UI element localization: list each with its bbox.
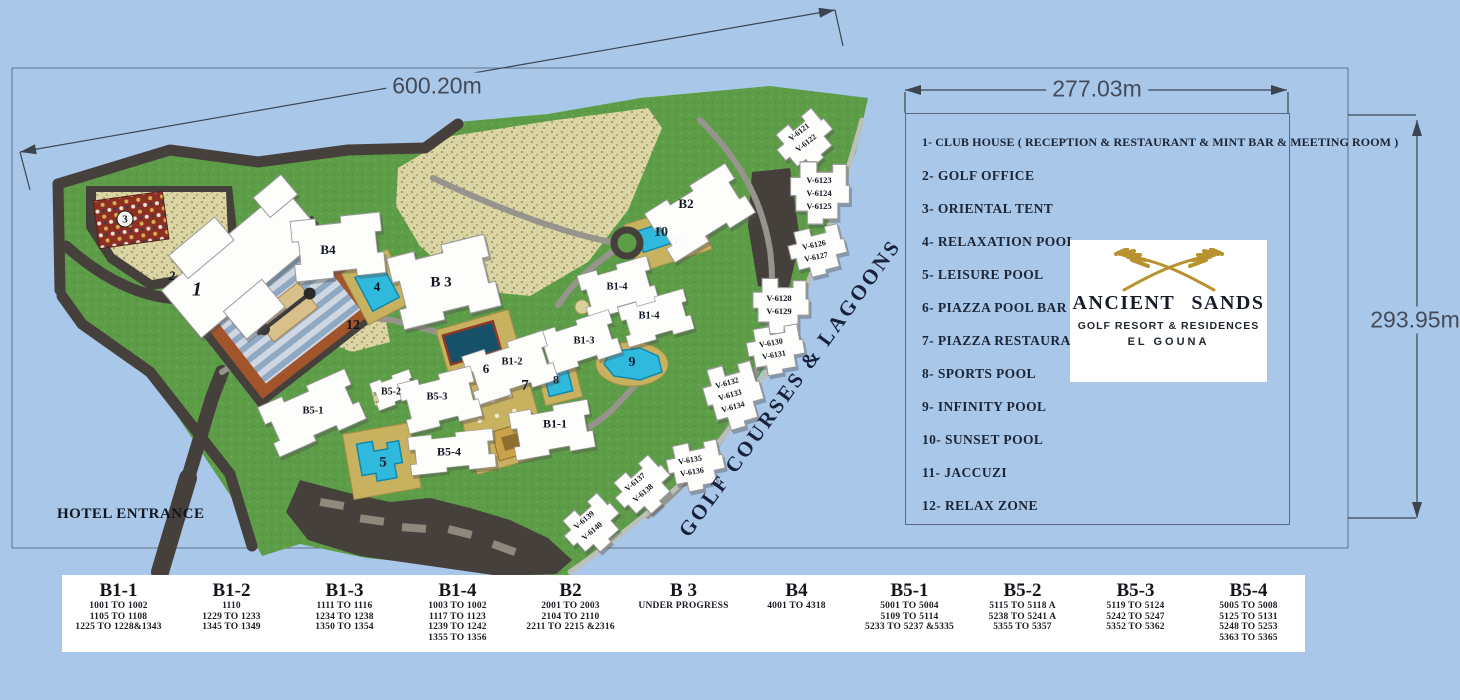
map-label: 1 xyxy=(192,279,202,302)
table-column: B22001 TO 20032104 TO 21102211 TO 2215 &… xyxy=(514,575,627,652)
unit-range: 2104 TO 2110 xyxy=(514,612,627,623)
units-table: B1-11001 TO 10021105 TO 11081225 TO 1228… xyxy=(62,575,1305,652)
unit-range: 5005 TO 5008 xyxy=(1192,601,1305,612)
map-label: 6 xyxy=(483,361,490,377)
map-label: 7 xyxy=(521,378,529,395)
table-column-header: B5-1 xyxy=(853,580,966,601)
logo-card: ANCIENT SANDS GOLF RESORT & RESIDENCES E… xyxy=(1070,240,1267,382)
map-label: 5 xyxy=(379,455,387,472)
map-label: 2 xyxy=(169,268,176,284)
legend-item: 12- RELAX ZONE xyxy=(906,489,1289,522)
table-column-header: B5-4 xyxy=(1192,580,1305,601)
map-label: V-6123 xyxy=(806,175,831,185)
map-label: V-6134 xyxy=(720,399,745,414)
map-label: B4 xyxy=(320,242,335,258)
unit-range: 4001 TO 4318 xyxy=(740,601,853,612)
unit-range: 5248 TO 5253 xyxy=(1192,622,1305,633)
unit-range: 1111 TO 1116 xyxy=(288,601,401,612)
unit-range: 5352 TO 5362 xyxy=(1079,622,1192,633)
table-column: B5-25115 TO 5118 A5238 TO 5241 A5355 TO … xyxy=(966,575,1079,652)
map-label: V-6128 xyxy=(766,293,791,303)
map-label: 12 xyxy=(346,318,360,334)
unit-range: 1117 TO 1123 xyxy=(401,612,514,623)
unit-range: 5109 TO 5114 xyxy=(853,612,966,623)
table-column: B1-211101229 TO 12331345 TO 1349 xyxy=(175,575,288,652)
map-label: B5-3 xyxy=(427,392,448,403)
map-label: B 3 xyxy=(430,275,451,292)
map-label: B5-1 xyxy=(303,406,324,417)
map-label: V-6135 xyxy=(677,453,702,466)
map-label: 10 xyxy=(654,225,668,241)
dimension-top: 600.20m xyxy=(386,73,488,100)
table-column: B5-15001 TO 50045109 TO 51145233 TO 5237… xyxy=(853,575,966,652)
table-column-header: B2 xyxy=(514,580,627,601)
unit-range: 5233 TO 5237 &5335 xyxy=(853,622,966,633)
table-column: B1-31111 TO 11161234 TO 12381350 TO 1354 xyxy=(288,575,401,652)
table-column: B5-35119 TO 51245242 TO 52475352 TO 5362 xyxy=(1079,575,1192,652)
map-label: B1-1 xyxy=(543,417,567,432)
map-label: 3 xyxy=(117,211,134,228)
table-column-header: B5-2 xyxy=(966,580,1079,601)
map-label: V-6136 xyxy=(679,465,704,478)
logo-title: ANCIENT SANDS xyxy=(1073,292,1265,315)
unit-range: 5242 TO 5247 xyxy=(1079,612,1192,623)
legend-item: 2- GOLF OFFICE xyxy=(906,159,1289,192)
map-label: B5-2 xyxy=(381,387,401,398)
map-label: B1-4 xyxy=(607,282,628,293)
unit-range: 1105 TO 1108 xyxy=(62,612,175,623)
unit-range: 1225 TO 1228&1343 xyxy=(62,622,175,633)
logo-city: EL GOUNA xyxy=(1128,336,1210,348)
table-column: B5-45005 TO 50085125 TO 51315248 TO 5253… xyxy=(1192,575,1305,652)
unit-range: 5001 TO 5004 xyxy=(853,601,966,612)
map-label: V-6130 xyxy=(758,336,783,349)
table-column: B 3UNDER PROGRESS xyxy=(627,575,740,652)
unit-range: 1229 TO 1233 xyxy=(175,612,288,623)
map-label: B1-2 xyxy=(502,357,523,368)
legend-item: 9- INFINITY POOL xyxy=(906,390,1289,423)
table-column-header: B1-3 xyxy=(288,580,401,601)
unit-range: 1350 TO 1354 xyxy=(288,622,401,633)
crossed-fronds-icon xyxy=(1094,248,1244,292)
table-column: B1-11001 TO 10021105 TO 11081225 TO 1228… xyxy=(62,575,175,652)
legend-item: 1- CLUB HOUSE ( RECEPTION & RESTAURANT &… xyxy=(906,126,1289,159)
unit-range: UNDER PROGRESS xyxy=(627,601,740,612)
hotel-entrance-label: HOTEL ENTRANCE xyxy=(57,506,204,523)
logo-subtitle: GOLF RESORT & RESIDENCES xyxy=(1078,320,1260,332)
unit-range: 5115 TO 5118 A xyxy=(966,601,1079,612)
table-column-header: B4 xyxy=(740,580,853,601)
unit-range: 1355 TO 1356 xyxy=(401,633,514,644)
table-column-header: B1-2 xyxy=(175,580,288,601)
map-label: B5-4 xyxy=(437,445,461,460)
legend-item: 3- ORIENTAL TENT xyxy=(906,192,1289,225)
map-label: 11 xyxy=(674,235,683,245)
unit-range: 2211 TO 2215 &2316 xyxy=(514,622,627,633)
map-label: V-6127 xyxy=(803,250,828,264)
unit-range: 1239 TO 1242 xyxy=(401,622,514,633)
unit-range: 1001 TO 1002 xyxy=(62,601,175,612)
map-label: 8 xyxy=(553,373,559,388)
table-column: B44001 TO 4318 xyxy=(740,575,853,652)
unit-range: 5238 TO 5241 A xyxy=(966,612,1079,623)
map-label: B1-4 xyxy=(639,311,660,322)
unit-range: 5119 TO 5124 xyxy=(1079,601,1192,612)
map-label: B2 xyxy=(678,196,693,212)
map-label: 4 xyxy=(374,279,381,295)
table-column-header: B 3 xyxy=(627,580,740,601)
dimension-top-right: 277.03m xyxy=(1046,76,1148,103)
map-label: V-6124 xyxy=(806,188,831,198)
table-column-header: B1-4 xyxy=(401,580,514,601)
unit-range: 2001 TO 2003 xyxy=(514,601,627,612)
unit-range: 1345 TO 1349 xyxy=(175,622,288,633)
map-label: V-6125 xyxy=(806,201,831,211)
unit-range: 5363 TO 5365 xyxy=(1192,633,1305,644)
map-label: B1-3 xyxy=(574,336,595,347)
unit-range: 5355 TO 5357 xyxy=(966,622,1079,633)
map-label: 9 xyxy=(629,355,636,371)
unit-range: 1003 TO 1002 xyxy=(401,601,514,612)
table-column-header: B1-1 xyxy=(62,580,175,601)
unit-range: 5125 TO 5131 xyxy=(1192,612,1305,623)
legend-item: 11- JACCUZI xyxy=(906,456,1289,489)
table-column-header: B5-3 xyxy=(1079,580,1192,601)
golf-courses-lagoons-label: GOLF COURSES & LAGOONS xyxy=(673,234,906,542)
map-label: V-6129 xyxy=(766,306,791,316)
legend-item: 10- SUNSET POOL xyxy=(906,423,1289,456)
dimension-right: 293.95m xyxy=(1364,307,1460,334)
unit-range: 1110 xyxy=(175,601,288,612)
map-label: V-6131 xyxy=(761,348,786,361)
unit-range: 1234 TO 1238 xyxy=(288,612,401,623)
table-column: B1-41003 TO 10021117 TO 11231239 TO 1242… xyxy=(401,575,514,652)
